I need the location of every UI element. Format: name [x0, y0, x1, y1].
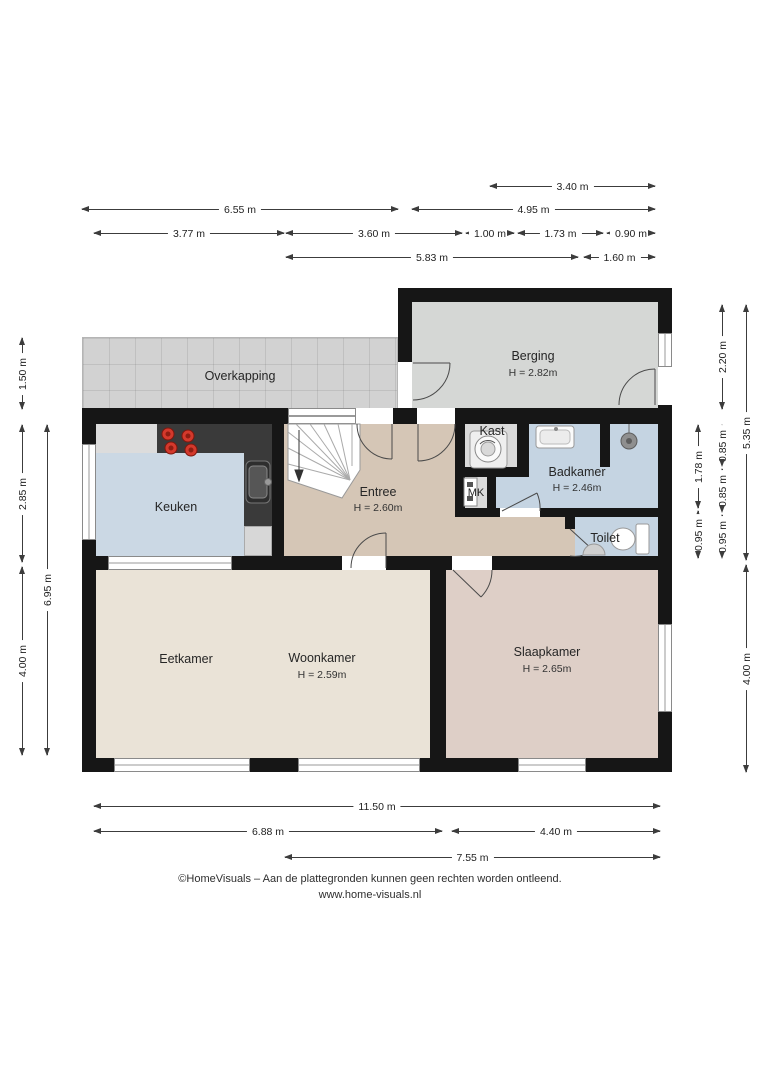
kitchen-sink-icon	[246, 461, 272, 503]
dim-right-5-35: 5.35 m	[746, 305, 747, 560]
room-height-entree: H = 2.60m	[354, 502, 403, 514]
dim-top-4-95: 4.95 m	[412, 209, 655, 210]
room-height-slaapkamer: H = 2.65m	[523, 663, 572, 675]
dim-bottom-11-50: 11.50 m	[94, 806, 660, 807]
room-label-badkamer: Badkamer	[549, 465, 606, 479]
dim-right-2-20: 2.20 m	[722, 305, 723, 409]
staircase-icon	[288, 424, 360, 498]
room-label-berging: Berging	[511, 349, 554, 363]
dim-left-6-95: 6.95 m	[47, 425, 48, 755]
door-slaapkamer	[453, 570, 492, 597]
dim-top-3-60: 3.60 m	[286, 233, 462, 234]
room-label-eetkamer: Eetkamer	[159, 652, 213, 666]
dim-top-0-90: 0.90 m	[607, 233, 655, 234]
room-label-slaapkamer: Slaapkamer	[514, 645, 581, 659]
door-badkamer	[502, 493, 540, 511]
dim-top-1-00: 1.00 m	[466, 233, 514, 234]
dim-left-1-50: 1.50 m	[22, 338, 23, 409]
floor-plan-canvas: Overkapping Berging H = 2.82m Keuken Ent…	[0, 0, 764, 1080]
plan-symbols-layer	[0, 0, 764, 1080]
room-label-mk: MK	[468, 487, 485, 499]
room-label-overkapping: Overkapping	[205, 369, 276, 383]
dim-right-0-85-a: 0.85 m	[722, 425, 723, 466]
door-swings	[351, 363, 655, 597]
door-woonkamer	[351, 533, 386, 568]
door-front	[418, 424, 455, 461]
dim-top-3-40: 3.40 m	[490, 186, 655, 187]
door-berging-left	[413, 363, 450, 400]
dim-top-1-60: 1.60 m	[584, 257, 655, 258]
room-label-kast: Kast	[479, 424, 504, 438]
washbasin-icon	[536, 426, 574, 448]
door-entree-left	[357, 424, 392, 459]
dim-left-2-85: 2.85 m	[22, 425, 23, 562]
dim-bottom-6-88: 6.88 m	[94, 831, 442, 832]
dim-bottom-7-55: 7.55 m	[285, 857, 660, 858]
dim-top-3-77: 3.77 m	[94, 233, 284, 234]
dim-right-1-78: 1.78 m	[698, 425, 699, 508]
room-label-woonkamer: Woonkamer	[288, 651, 355, 665]
room-height-woonkamer: H = 2.59m	[298, 669, 347, 681]
dim-right-0-95-a: 0.95 m	[698, 511, 699, 558]
dim-top-6-55: 6.55 m	[82, 209, 398, 210]
room-height-badkamer: H = 2.46m	[553, 482, 602, 494]
dim-right-0-95-b: 0.95 m	[722, 515, 723, 558]
dim-top-5-83: 5.83 m	[286, 257, 578, 258]
dim-bottom-4-40: 4.40 m	[452, 831, 660, 832]
dim-left-4-00: 4.00 m	[22, 567, 23, 755]
dim-right-0-85-b: 0.85 m	[722, 469, 723, 512]
door-berging-right	[619, 369, 655, 405]
room-height-berging: H = 2.82m	[509, 367, 558, 379]
room-label-keuken: Keuken	[155, 500, 197, 514]
cooktop-icon	[162, 428, 197, 456]
dim-top-1-73: 1.73 m	[518, 233, 603, 234]
fountain-sink-icon	[583, 544, 605, 555]
footer-url: www.home-visuals.nl	[0, 888, 740, 904]
dim-right-4-00: 4.00 m	[746, 565, 747, 772]
room-label-entree: Entree	[360, 485, 397, 499]
footer: ©HomeVisuals – Aan de plattegronden kunn…	[0, 872, 740, 904]
shower-drain-icon	[621, 424, 637, 449]
room-label-toilet: Toilet	[590, 531, 619, 545]
footer-disclaimer: ©HomeVisuals – Aan de plattegronden kunn…	[0, 872, 740, 888]
